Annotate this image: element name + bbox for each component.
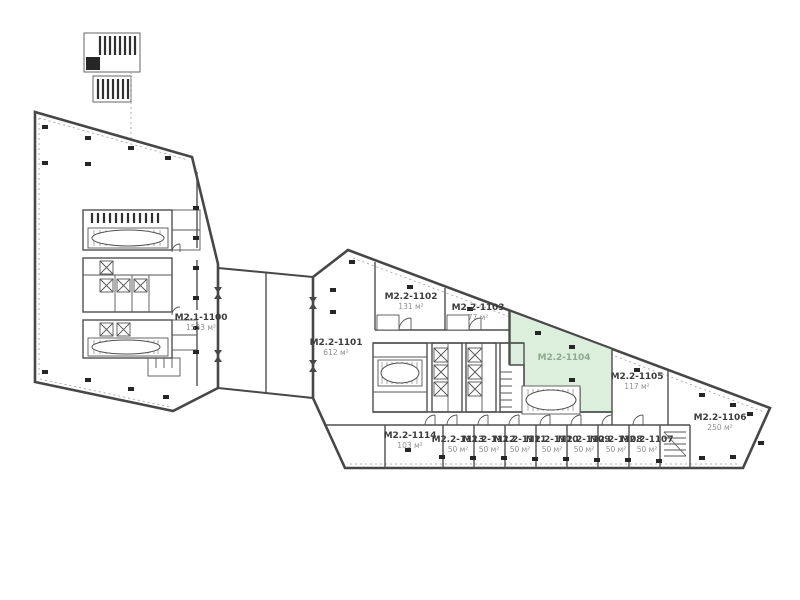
room-label-m22-1102[interactable]: M2.2-1102 131 м²	[385, 292, 438, 311]
room-label-m22-1107[interactable]: M2.2-1107 50 м²	[621, 435, 674, 454]
room-name: M2.1-1100	[175, 313, 228, 323]
room-area: 50 м²	[621, 445, 674, 454]
room-name: M2.2-1102	[385, 292, 438, 302]
room-name: M2.2-1114	[384, 431, 437, 441]
room-area: 77 м²	[452, 313, 505, 322]
room-area: 1533 м²	[175, 323, 228, 332]
room-area: 131 м²	[385, 302, 438, 311]
floor-plan-page: M2.1-1100 1533 м² M2.2-1101 612 м² M2.2-…	[0, 0, 800, 600]
room-name: M2.2-1104	[538, 353, 591, 363]
room-name: M2.2-1107	[621, 435, 674, 445]
room-label-m22-1104[interactable]: M2.2-1104	[538, 353, 591, 363]
room-area: 250 м²	[694, 423, 747, 432]
room-label-m22-1114[interactable]: M2.2-1114 103 м²	[384, 431, 437, 450]
stairwell-b	[522, 386, 580, 414]
room-name: M2.2-1101	[310, 338, 363, 348]
left-wing-outline	[35, 112, 218, 411]
room-label-m22-1105[interactable]: M2.2-1105 117 м²	[611, 372, 664, 391]
room-name: M2.2-1105	[611, 372, 664, 382]
room-area: 612 м²	[310, 348, 363, 357]
room-name: M2.2-1106	[694, 413, 747, 423]
room-label-m22-1101[interactable]: M2.2-1101 612 м²	[310, 338, 363, 357]
room-label-m22-1106[interactable]: M2.2-1106 250 м²	[694, 413, 747, 432]
room-area: 117 м²	[611, 382, 664, 391]
room-label-m21-1100[interactable]: M2.1-1100 1533 м²	[175, 313, 228, 332]
room-name: M2.2-1103	[452, 303, 505, 313]
room-label-m22-1103[interactable]: M2.2-1103 77 м²	[452, 303, 505, 322]
room-area: 103 м²	[384, 441, 437, 450]
